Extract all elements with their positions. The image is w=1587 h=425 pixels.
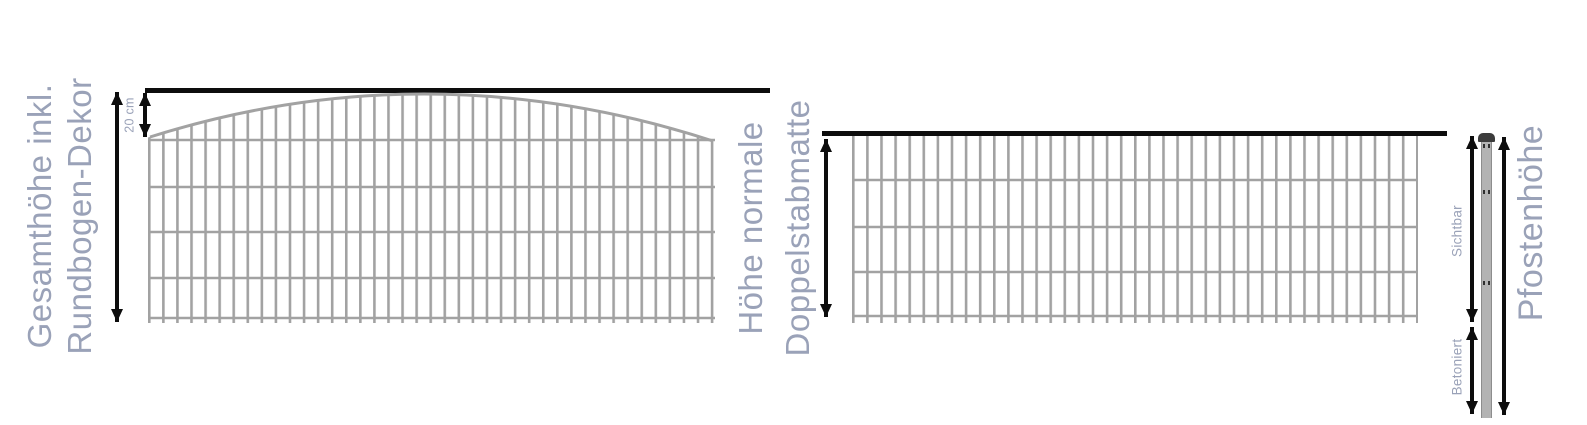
post-mount-holes xyxy=(1483,281,1490,285)
fence-post xyxy=(1481,140,1492,418)
total-height-arrow xyxy=(115,92,119,322)
total-height-label-line2: Rundbogen-Dekor xyxy=(60,77,100,354)
mat-height-label-line2: Doppelstabmatte xyxy=(774,100,821,357)
arch-height-arrow xyxy=(143,93,147,137)
mat-height-label-line1: Höhe normale xyxy=(727,100,774,357)
mesh-vertical-bars xyxy=(148,88,715,323)
post-hole xyxy=(1483,190,1485,194)
post-hole xyxy=(1483,281,1485,285)
concreted-depth-arrow xyxy=(1470,327,1474,414)
post-height-arrow xyxy=(1502,137,1506,415)
post-height-label: Pfostenhöhe xyxy=(1513,125,1549,321)
visible-label: Sichtbar xyxy=(1450,205,1465,257)
arched-fence-panel xyxy=(148,88,715,325)
post-hole xyxy=(1488,190,1490,194)
post-hole xyxy=(1483,144,1485,148)
post-hole xyxy=(1488,281,1490,285)
post-mount-holes xyxy=(1483,144,1490,148)
arch-height-label: 20 cm xyxy=(123,97,138,133)
visible-height-arrow xyxy=(1470,136,1474,322)
fence-post-cap xyxy=(1478,133,1495,142)
mat-height-arrow xyxy=(824,139,828,317)
post-hole xyxy=(1488,144,1490,148)
fence-dimension-diagram: Gesamthöhe inkl. Rundbogen-Dekor 20 cm xyxy=(0,0,1587,425)
flat-fence-panel xyxy=(852,131,1418,325)
total-height-label-line1: Gesamthöhe inkl. xyxy=(20,77,60,354)
mesh-vertical-bars xyxy=(852,136,1418,323)
concreted-label: Betoniert xyxy=(1450,339,1465,396)
post-mount-holes xyxy=(1483,190,1490,194)
